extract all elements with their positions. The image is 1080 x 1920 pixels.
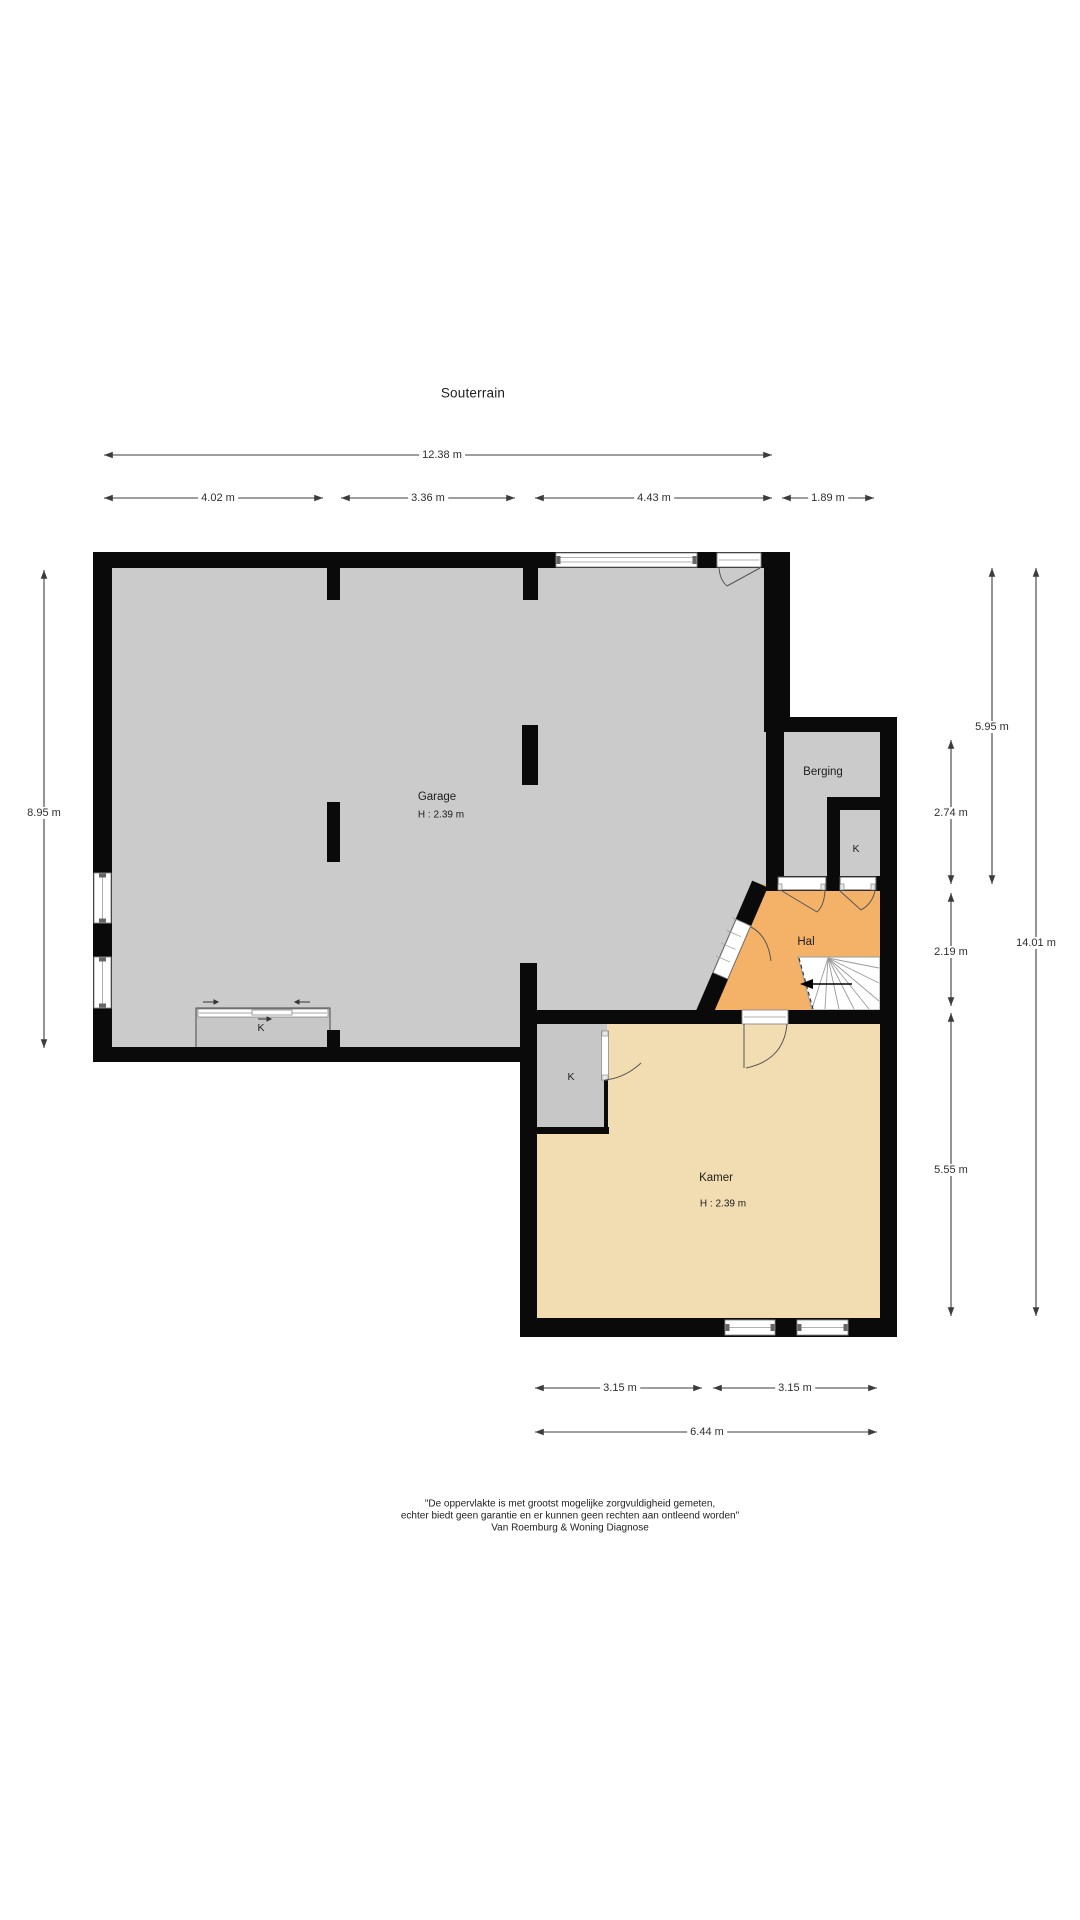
wall-kamer-closet-right	[604, 1078, 608, 1130]
wall-garage-right-upper	[764, 552, 790, 732]
berging-closet-label: K	[852, 843, 859, 855]
floorplan-drawing	[0, 0, 1080, 1920]
dim-right-274: 2.74 m	[931, 807, 971, 819]
garage-label: Garage	[418, 791, 456, 803]
garage-height-label: H : 2.39 m	[418, 810, 464, 821]
dim-top-seg3: 4.43 m	[634, 492, 674, 504]
kamer-closet-label: K	[567, 1071, 574, 1083]
dim-right-1401: 14.01 m	[1013, 937, 1059, 949]
wall-garage-bottom	[93, 1047, 537, 1062]
window-left-1	[94, 873, 111, 923]
disclaimer-line-2: echter biedt geen garantie en er kunnen …	[401, 1511, 739, 1522]
pillar-top-stub-2	[523, 568, 538, 600]
dim-right-555: 5.55 m	[931, 1164, 971, 1176]
disclaimer-line-1: "De oppervlakte is met grootst mogelijke…	[425, 1499, 715, 1510]
wall-right-outer	[880, 717, 897, 1337]
dim-bottom-seg1: 3.15 m	[600, 1382, 640, 1394]
dim-top-seg4: 1.89 m	[808, 492, 848, 504]
berging-label: Berging	[803, 766, 843, 778]
wall-garage-berging	[766, 732, 784, 891]
dim-top-total: 12.38 m	[419, 449, 465, 461]
garage-closet-label: K	[257, 1022, 264, 1034]
window-bottom-2	[797, 1320, 848, 1335]
window-top	[556, 553, 697, 567]
wall-kamer-closet-bottom	[537, 1127, 609, 1134]
kamer-label: Kamer	[699, 1172, 733, 1184]
dim-bottom-seg2: 3.15 m	[775, 1382, 815, 1394]
window-bottom-1	[725, 1320, 775, 1335]
kamer-height-label: H : 2.39 m	[700, 1199, 746, 1210]
wall-berging-k-vertical	[827, 797, 840, 891]
garage-floor	[103, 560, 780, 1055]
disclaimer-line-3: Van Roemburg & Woning Diagnose	[491, 1523, 649, 1534]
dim-top-seg1: 4.02 m	[198, 492, 238, 504]
dim-top-seg2: 3.36 m	[408, 492, 448, 504]
staircase	[798, 957, 880, 1010]
pillar-garage-right	[522, 725, 538, 785]
pillar-top-stub-1	[327, 568, 340, 600]
window-left-2	[94, 957, 111, 1008]
dim-right-595: 5.95 m	[972, 721, 1012, 733]
dim-bottom-total: 6.44 m	[687, 1426, 727, 1438]
dim-left: 8.95 m	[24, 807, 64, 819]
floorplan-page: Souterrain Garage H : 2.39 m Berging K H…	[0, 0, 1080, 1920]
dim-right-219: 2.19 m	[931, 946, 971, 958]
page-title: Souterrain	[441, 386, 505, 401]
pillar-garage-left	[327, 802, 340, 862]
hal-label: Hal	[797, 936, 814, 948]
closet-pillar	[327, 1030, 340, 1048]
